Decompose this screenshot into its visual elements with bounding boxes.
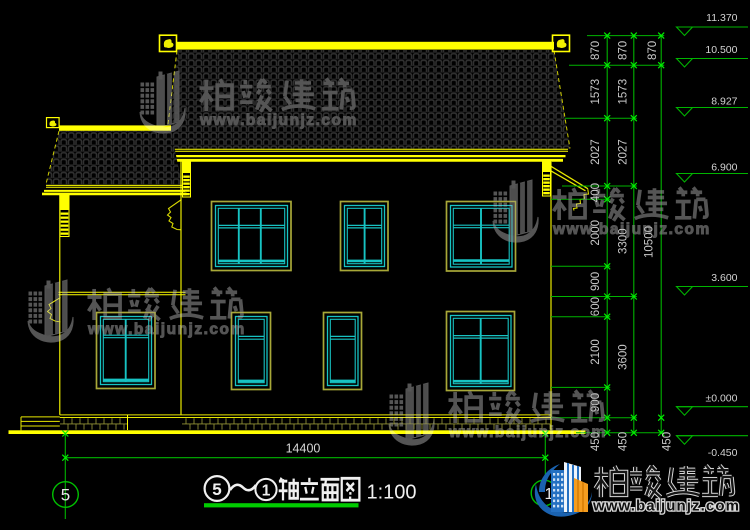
svg-text:870: 870 <box>618 41 630 60</box>
svg-text:6.900: 6.900 <box>711 161 737 173</box>
svg-text:2100: 2100 <box>590 339 602 365</box>
svg-text:10.500: 10.500 <box>705 44 737 56</box>
svg-text:450: 450 <box>618 432 630 451</box>
svg-text:1573: 1573 <box>618 79 630 105</box>
svg-text:2027: 2027 <box>618 139 630 165</box>
svg-text:-0.450: -0.450 <box>708 447 738 459</box>
svg-text:400: 400 <box>590 183 602 202</box>
svg-text:3600: 3600 <box>618 344 630 370</box>
svg-text:±0.000: ±0.000 <box>705 392 737 404</box>
svg-text:5: 5 <box>61 486 70 505</box>
svg-text:8.927: 8.927 <box>711 95 737 107</box>
svg-text:5: 5 <box>212 480 221 499</box>
svg-text:14400: 14400 <box>286 442 321 456</box>
svg-text:3.600: 3.600 <box>711 272 737 284</box>
svg-text:11.370: 11.370 <box>706 12 737 24</box>
svg-text:www.baijunjz.com: www.baijunjz.com <box>592 498 740 515</box>
svg-text:1:100: 1:100 <box>367 482 417 504</box>
svg-text:450: 450 <box>662 432 674 451</box>
svg-text:1573: 1573 <box>590 79 602 105</box>
svg-text:870: 870 <box>647 41 659 60</box>
svg-text:1: 1 <box>262 482 271 499</box>
svg-text:900: 900 <box>590 272 602 291</box>
svg-text:2027: 2027 <box>590 139 602 165</box>
svg-text:870: 870 <box>590 41 602 60</box>
svg-text:600: 600 <box>590 297 602 316</box>
